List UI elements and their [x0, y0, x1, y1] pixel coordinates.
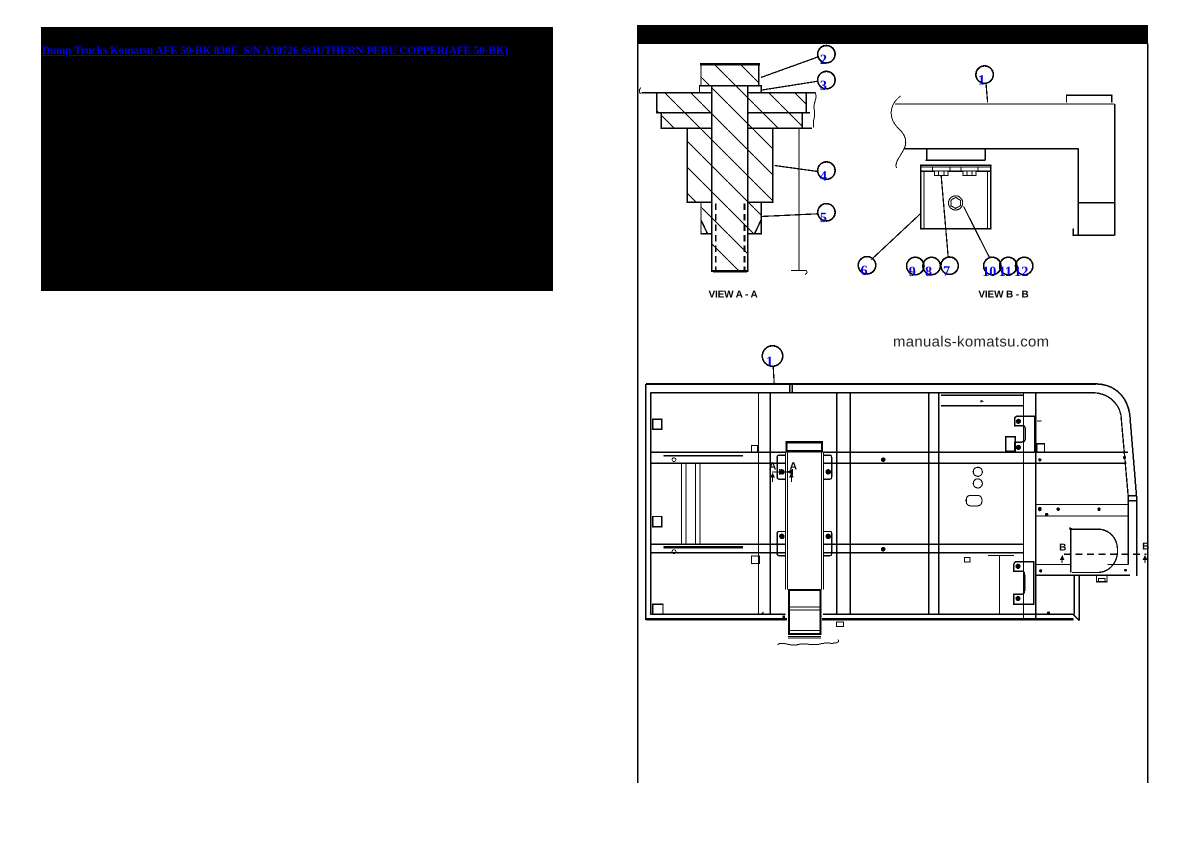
svg-text:8: 8 — [925, 264, 932, 280]
svg-text:manuals-komatsu.com: manuals-komatsu.com — [893, 334, 1049, 350]
svg-text:5: 5 — [820, 210, 827, 226]
svg-text:B: B — [1059, 542, 1066, 553]
svg-text:11: 11 — [999, 264, 1012, 280]
svg-text:7: 7 — [943, 264, 950, 280]
svg-text:1: 1 — [766, 354, 773, 370]
svg-text:10: 10 — [982, 264, 996, 280]
svg-text:9: 9 — [909, 264, 916, 280]
svg-text:4: 4 — [820, 169, 827, 185]
svg-text:12: 12 — [1014, 264, 1028, 280]
svg-text:VIEW A - A: VIEW A - A — [708, 289, 757, 300]
svg-text:A: A — [769, 461, 777, 473]
svg-text:2: 2 — [820, 52, 827, 68]
svg-text:1: 1 — [978, 73, 985, 89]
svg-text:6: 6 — [860, 263, 867, 279]
svg-text:B: B — [1142, 542, 1149, 553]
svg-text:3: 3 — [820, 78, 827, 94]
svg-text:VIEW B - B: VIEW B - B — [978, 289, 1028, 300]
